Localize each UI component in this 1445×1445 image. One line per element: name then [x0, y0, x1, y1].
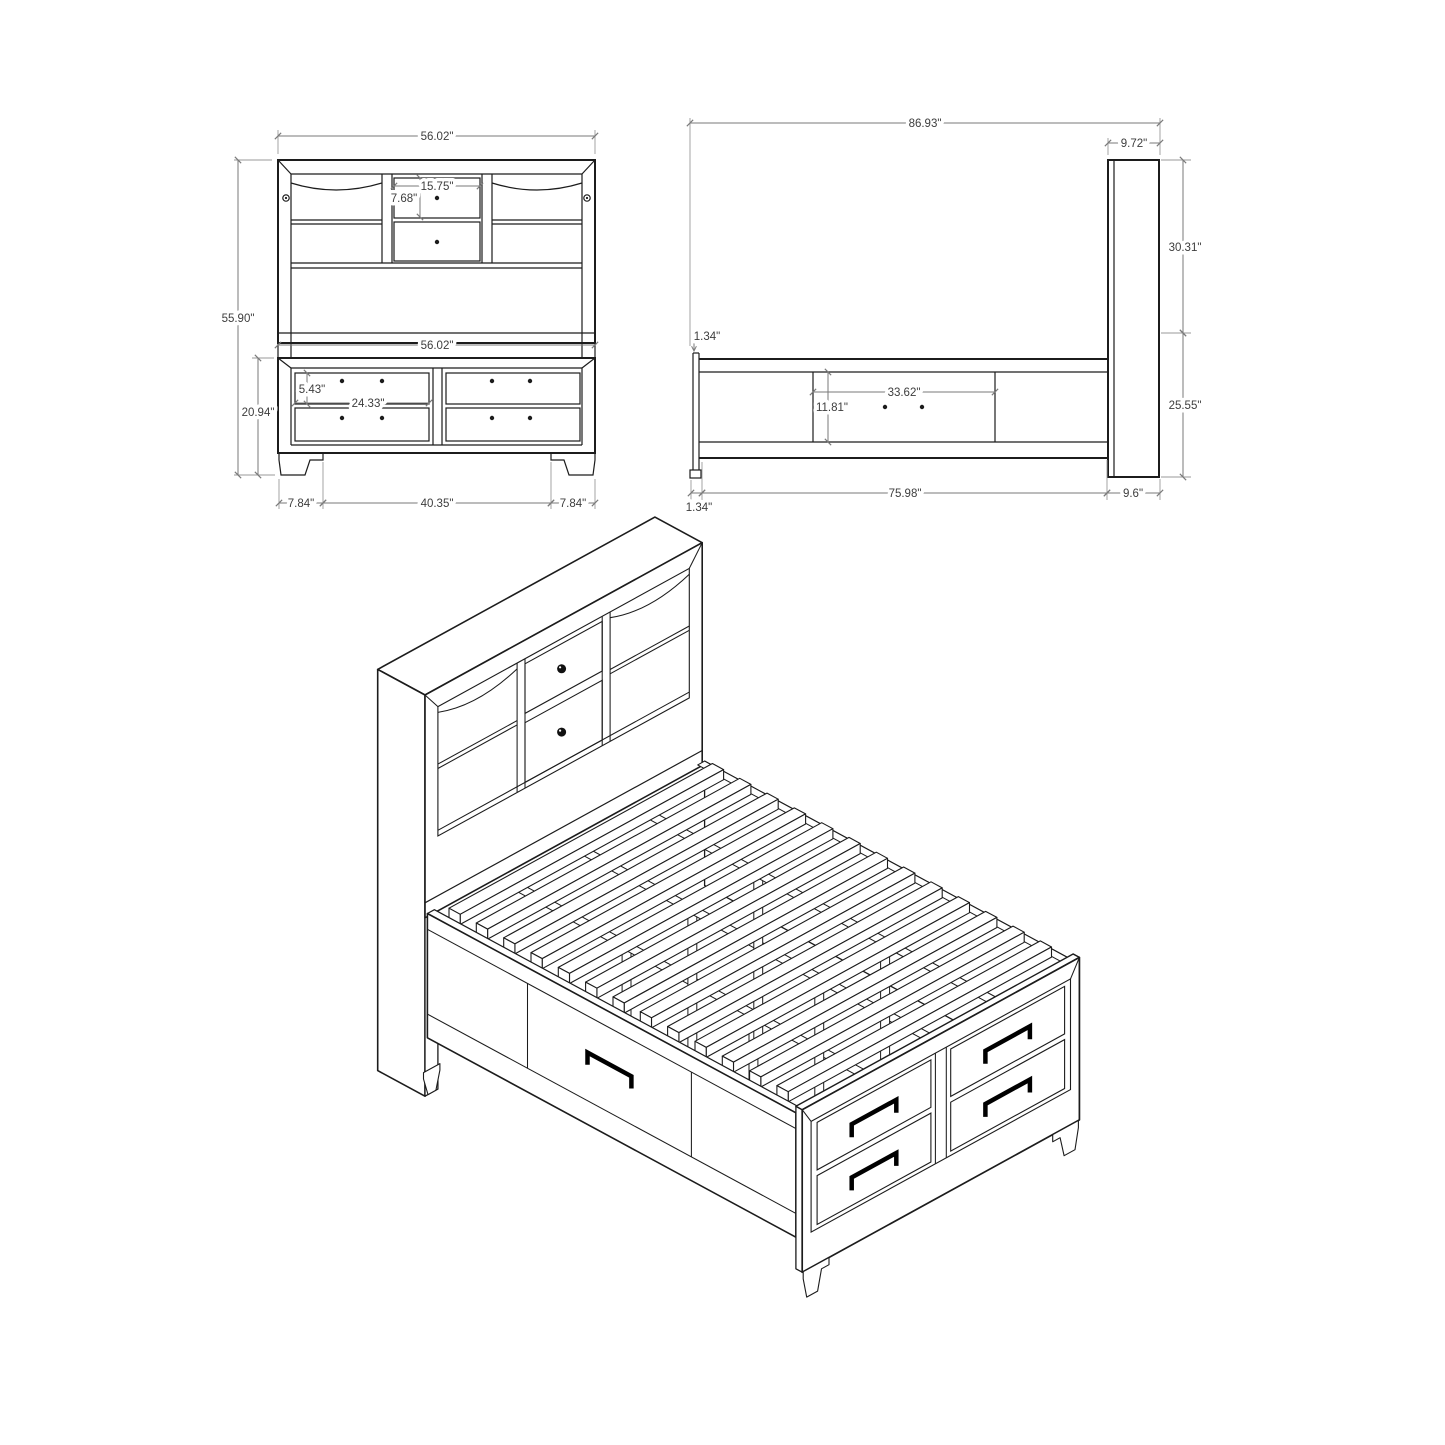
dim-front-footboard-height: 20.94"	[242, 407, 275, 419]
dim-front-base-center-span: 40.35"	[421, 498, 454, 510]
dim-front-center-opening-width: 15.75"	[421, 181, 454, 193]
dim-side-drawer-height: 11.81"	[816, 402, 848, 414]
dim-side-rail-lip-bottom: 1.34"	[686, 502, 712, 514]
dim-front-base-right-offset: 7.84"	[560, 498, 586, 510]
isometric-view-drawing	[378, 517, 1080, 1297]
dim-front-base-left-offset: 7.84"	[288, 498, 314, 510]
dim-side-footboard-height: 25.55"	[1169, 400, 1202, 412]
dim-side-headboard-depth: 9.72"	[1121, 138, 1147, 150]
side-view-drawing	[690, 160, 1159, 478]
side-view-dimensions: 86.93" 9.72" 30.31" 25.55" 33.62" 11.81"…	[686, 118, 1202, 514]
dim-front-footboard-drawer-height: 5.43"	[299, 384, 325, 396]
dim-front-overall-width-top: 56.02"	[421, 131, 454, 143]
dim-side-drawer-width: 33.62"	[888, 387, 921, 399]
blueprint-canvas: 56.02" 15.75" 7.68" 55.90" 56.02" 5.43" …	[0, 0, 1445, 1445]
dim-front-base-width: 56.02"	[421, 340, 454, 352]
front-view-drawing	[278, 160, 595, 475]
dim-side-overall-length: 86.93"	[909, 118, 942, 130]
knob-dot	[435, 240, 439, 244]
dim-front-footboard-drawer-width: 24.33"	[352, 398, 385, 410]
blueprint-page: 56.02" 15.75" 7.68" 55.90" 56.02" 5.43" …	[0, 0, 1445, 1445]
dim-front-center-opening-height: 7.68"	[391, 193, 417, 205]
dim-side-rail-lip-top: 1.34"	[694, 331, 720, 343]
dim-side-headboard-base-depth: 9.6"	[1123, 488, 1143, 500]
bracket-foot-left	[279, 453, 323, 475]
headboard-arch-left	[291, 183, 382, 190]
dim-side-rail-length: 75.98"	[889, 488, 922, 500]
dim-front-overall-height: 55.90"	[222, 313, 255, 325]
knob-dot	[435, 196, 439, 200]
dim-side-headboard-height: 30.31"	[1169, 242, 1202, 254]
bracket-foot-right	[551, 453, 595, 475]
rail-end-foot	[690, 470, 701, 478]
headboard-arch-right	[492, 183, 582, 190]
